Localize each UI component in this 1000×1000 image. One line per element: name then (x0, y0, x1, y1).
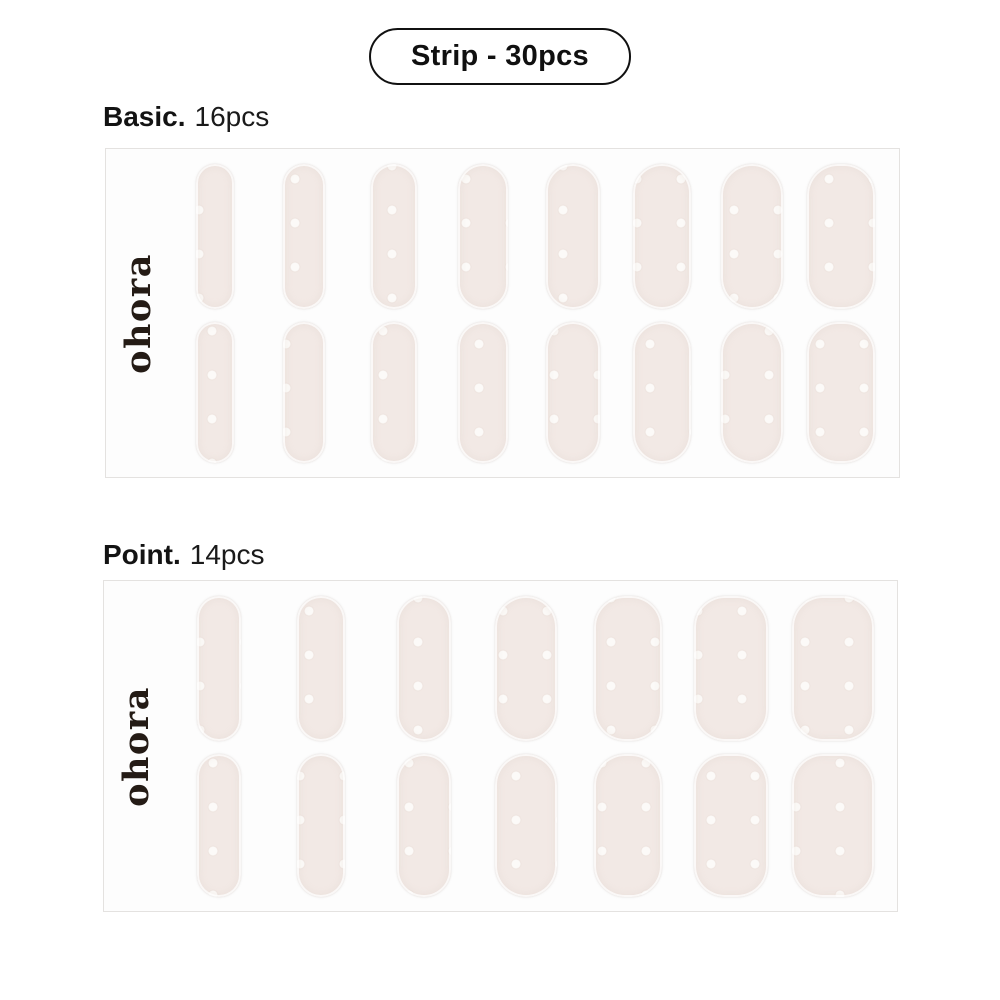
nail-strip (792, 596, 874, 741)
nail-strip (694, 596, 768, 741)
strip-cell (439, 322, 529, 463)
nail-strip (283, 164, 325, 309)
strip-cell (373, 754, 475, 897)
strip-cell (373, 596, 475, 741)
strip-cell (679, 754, 781, 897)
nail-strip (458, 164, 508, 309)
nail-strip-sheet-point: ohora (103, 580, 898, 912)
nail-strip (371, 322, 417, 463)
strip-cell (797, 322, 887, 463)
strip-row (170, 164, 886, 309)
strip-cell (260, 164, 350, 309)
strip-cell (475, 596, 577, 741)
strip-grid (168, 596, 884, 897)
nail-strip (546, 322, 600, 463)
nail-strip-sheet-basic: ohora (105, 148, 900, 478)
strip-cell (618, 164, 708, 309)
strip-row (170, 322, 886, 463)
strip-cell (797, 164, 887, 309)
strip-cell (679, 596, 781, 741)
nail-strip (397, 754, 451, 897)
strip-cell (707, 164, 797, 309)
nail-strip (297, 754, 345, 897)
sheet-title-basic-text: Basic. (103, 100, 186, 134)
badge-label: Strip - 30pcs (411, 40, 589, 73)
logo-column: ohora (106, 149, 170, 477)
nail-strip (495, 754, 557, 897)
ohora-logo: ohora (116, 686, 157, 807)
nail-strip (694, 754, 768, 897)
sheet-count-basic: 16pcs (195, 100, 270, 134)
strip-cell (260, 322, 350, 463)
strip-count-badge: Strip - 30pcs (369, 28, 631, 85)
strip-cell (270, 596, 372, 741)
nail-strip (721, 164, 783, 309)
nail-strip (594, 596, 662, 741)
strip-row (168, 754, 884, 897)
strip-cell (349, 164, 439, 309)
strip-cell (618, 322, 708, 463)
nail-strip (594, 754, 662, 897)
nail-strip (633, 322, 691, 463)
nail-strip (546, 164, 600, 309)
sheet-title-basic: Basic. 16pcs (103, 100, 269, 134)
strip-cell (170, 322, 260, 463)
nail-strip (197, 596, 241, 741)
sheet-title-point: Point. 14pcs (103, 538, 264, 572)
nail-strip (283, 322, 325, 463)
nail-strip (458, 322, 508, 463)
sheet-count-point: 14pcs (190, 538, 265, 572)
logo-column: ohora (104, 581, 168, 911)
strip-cell (707, 322, 797, 463)
sheet-title-point-text: Point. (103, 538, 181, 572)
strip-cell (528, 322, 618, 463)
strip-cell (170, 164, 260, 309)
nail-strip (397, 596, 451, 741)
nail-strip (371, 164, 417, 309)
nail-strip (495, 596, 557, 741)
strip-cell (475, 754, 577, 897)
nail-strip (807, 164, 875, 309)
strip-cell (782, 754, 884, 897)
strip-cell (577, 596, 679, 741)
strip-cell (528, 164, 618, 309)
nail-strip (297, 596, 345, 741)
nail-strip (721, 322, 783, 463)
strip-cell (349, 322, 439, 463)
strip-cell (168, 596, 270, 741)
nail-strip (196, 164, 234, 309)
nail-strip (633, 164, 691, 309)
product-gallery-image: Strip - 30pcs Basic. 16pcs ohora Point. … (0, 0, 1000, 1000)
nail-strip (792, 754, 874, 897)
nail-strip (807, 322, 875, 463)
strip-cell (168, 754, 270, 897)
ohora-logo: ohora (118, 253, 159, 374)
strip-cell (439, 164, 529, 309)
strip-cell (270, 754, 372, 897)
strip-row (168, 596, 884, 741)
strip-cell (577, 754, 679, 897)
strip-cell (782, 596, 884, 741)
strip-grid (170, 164, 886, 463)
nail-strip (196, 322, 234, 463)
nail-strip (197, 754, 241, 897)
